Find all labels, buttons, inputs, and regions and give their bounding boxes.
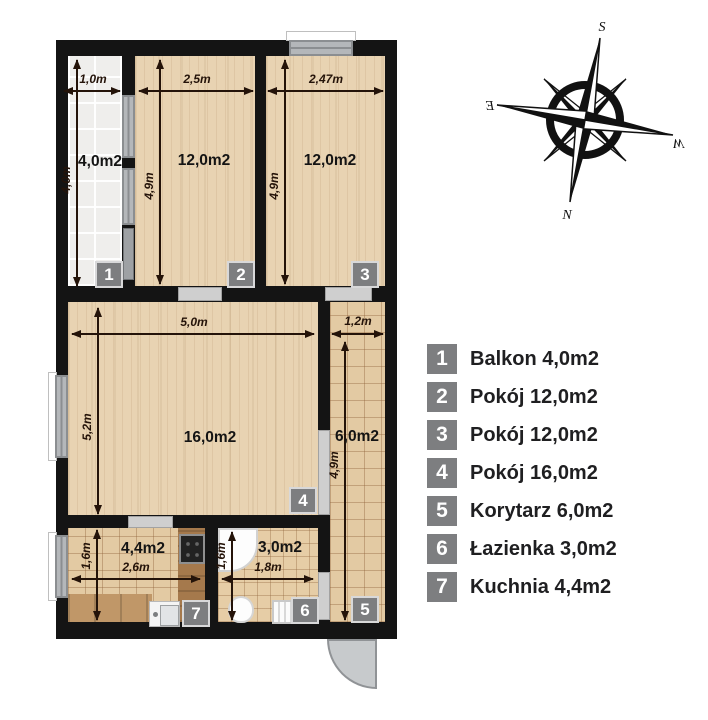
dim-label-balkon-height: 4,0m xyxy=(59,166,73,193)
room-badge-kuchnia: 7 xyxy=(182,600,210,627)
compass-label-w: W xyxy=(672,135,685,150)
legend-num-6: 6 xyxy=(427,534,457,564)
legend-item-kuchnia: 7 Kuchnia 4,4m2 xyxy=(427,572,617,602)
legend-item-balkon: 1 Balkon 4,0m2 xyxy=(427,344,617,374)
legend: 1 Balkon 4,0m2 2 Pokój 12,0m2 3 Pokój 12… xyxy=(427,344,617,602)
dim-arrow-balkon-width xyxy=(64,90,120,92)
sink-drain xyxy=(153,612,158,617)
legend-label-2: Pokój 12,0m2 xyxy=(470,386,598,409)
kitchen-left-window xyxy=(55,535,68,598)
area-label-lazienka: 3,0m2 xyxy=(258,539,302,557)
legend-label-4: Pokój 16,0m2 xyxy=(470,462,598,485)
dim-arrow-pokoj3-height xyxy=(284,60,286,284)
dim-label-pokoj2-height: 4,9m xyxy=(142,172,156,199)
dim-arrow-korytarz-height xyxy=(344,342,346,620)
floorplan-page: 1,0m 4,0m 4,0m2 1 2,5m 4,9m 12,0m2 2 2,4… xyxy=(0,0,708,720)
kitchen-sink xyxy=(149,601,180,627)
legend-label-3: Pokój 12,0m2 xyxy=(470,424,598,447)
room3-door-opening xyxy=(325,287,372,301)
compass-label-n: N xyxy=(561,208,572,223)
compass-label-e: E xyxy=(485,99,495,114)
dim-label-balkon-width: 1,0m xyxy=(79,72,106,86)
compass-rose: S E W N xyxy=(480,15,695,230)
floorplan: 1,0m 4,0m 4,0m2 1 2,5m 4,9m 12,0m2 2 2,4… xyxy=(0,0,430,720)
area-label-pokoj3: 12,0m2 xyxy=(304,152,357,170)
dim-label-pokoj2-width: 2,5m xyxy=(183,72,210,86)
legend-num-2: 2 xyxy=(427,382,457,412)
dim-arrow-korytarz-width xyxy=(332,333,383,335)
legend-item-lazienka: 6 Łazienka 3,0m2 xyxy=(427,534,617,564)
dim-label-korytarz-height: 4,9m xyxy=(327,451,341,478)
dim-label-kuchnia-width: 2,6m xyxy=(122,560,149,574)
dim-label-kuchnia-height: 1,6m xyxy=(79,542,93,569)
legend-num-5: 5 xyxy=(427,496,457,526)
room-badge-lazienka: 6 xyxy=(291,597,319,624)
room-badge-pokoj2: 2 xyxy=(227,261,255,288)
dim-arrow-kuchnia-width xyxy=(72,578,200,580)
balcony-window-upper xyxy=(122,95,135,158)
dim-arrow-pokoj2-width xyxy=(139,90,253,92)
balcony-door xyxy=(123,228,134,280)
room3-top-window xyxy=(289,40,353,56)
legend-num-7: 7 xyxy=(427,572,457,602)
wall-room4-bottom xyxy=(56,515,330,528)
legend-item-pokoj2: 2 Pokój 12,0m2 xyxy=(427,382,617,412)
sink-basin xyxy=(160,605,179,626)
area-label-balkon: 4,0m2 xyxy=(78,153,122,171)
legend-num-4: 4 xyxy=(427,458,457,488)
dim-arrow-pokoj2-height xyxy=(159,60,161,284)
dim-label-pokoj4-height: 5,2m xyxy=(80,413,94,440)
area-label-pokoj4: 16,0m2 xyxy=(184,429,237,447)
kitchen-stove xyxy=(179,534,205,564)
room-badge-balkon: 1 xyxy=(95,261,123,288)
balcony-window-lower xyxy=(122,168,135,225)
dim-arrow-lazienka-width xyxy=(222,578,313,580)
dim-label-pokoj4-width: 5,0m xyxy=(180,315,207,329)
entrance-door-swing xyxy=(327,639,377,689)
dim-label-pokoj3-height: 4,9m xyxy=(267,172,281,199)
area-label-kuchnia: 4,4m2 xyxy=(121,540,165,558)
wall-right xyxy=(385,40,397,639)
wall-bottom xyxy=(56,622,397,639)
dim-arrow-balkon-height xyxy=(76,60,78,286)
legend-label-6: Łazienka 3,0m2 xyxy=(470,538,617,561)
room4-left-window xyxy=(55,375,68,458)
area-label-pokoj2: 12,0m2 xyxy=(178,152,231,170)
legend-item-pokoj4: 4 Pokój 16,0m2 xyxy=(427,458,617,488)
compass-label-s: S xyxy=(599,20,606,35)
room-badge-pokoj4: 4 xyxy=(289,487,317,514)
kitchen-door-opening xyxy=(128,516,173,528)
legend-num-1: 1 xyxy=(427,344,457,374)
dim-arrow-lazienka-height xyxy=(231,532,233,620)
room-badge-korytarz: 5 xyxy=(351,596,379,623)
bathroom-door-opening xyxy=(318,572,330,620)
room2-door-opening xyxy=(178,287,222,301)
dim-label-pokoj3-width: 2,47m xyxy=(309,72,343,86)
dim-arrow-pokoj4-height xyxy=(97,308,99,514)
legend-item-korytarz: 5 Korytarz 6,0m2 xyxy=(427,496,617,526)
dim-label-lazienka-width: 1,8m xyxy=(254,560,281,574)
legend-label-5: Korytarz 6,0m2 xyxy=(470,500,613,523)
area-label-korytarz: 6,0m2 xyxy=(335,428,379,446)
dim-arrow-pokoj4-width xyxy=(72,333,314,335)
dim-label-lazienka-height: 1,6m xyxy=(214,542,228,569)
room-badge-pokoj3: 3 xyxy=(351,261,379,288)
compass-cardinal-points xyxy=(497,38,673,202)
kitchen-counter-bottom xyxy=(68,594,152,622)
legend-item-pokoj3: 3 Pokój 12,0m2 xyxy=(427,420,617,450)
dim-arrow-kuchnia-height xyxy=(96,530,98,620)
legend-label-1: Balkon 4,0m2 xyxy=(470,348,599,371)
wall-rooms2-3 xyxy=(255,56,266,288)
legend-label-7: Kuchnia 4,4m2 xyxy=(470,576,611,599)
dim-label-korytarz-width: 1,2m xyxy=(344,314,371,328)
legend-num-3: 3 xyxy=(427,420,457,450)
